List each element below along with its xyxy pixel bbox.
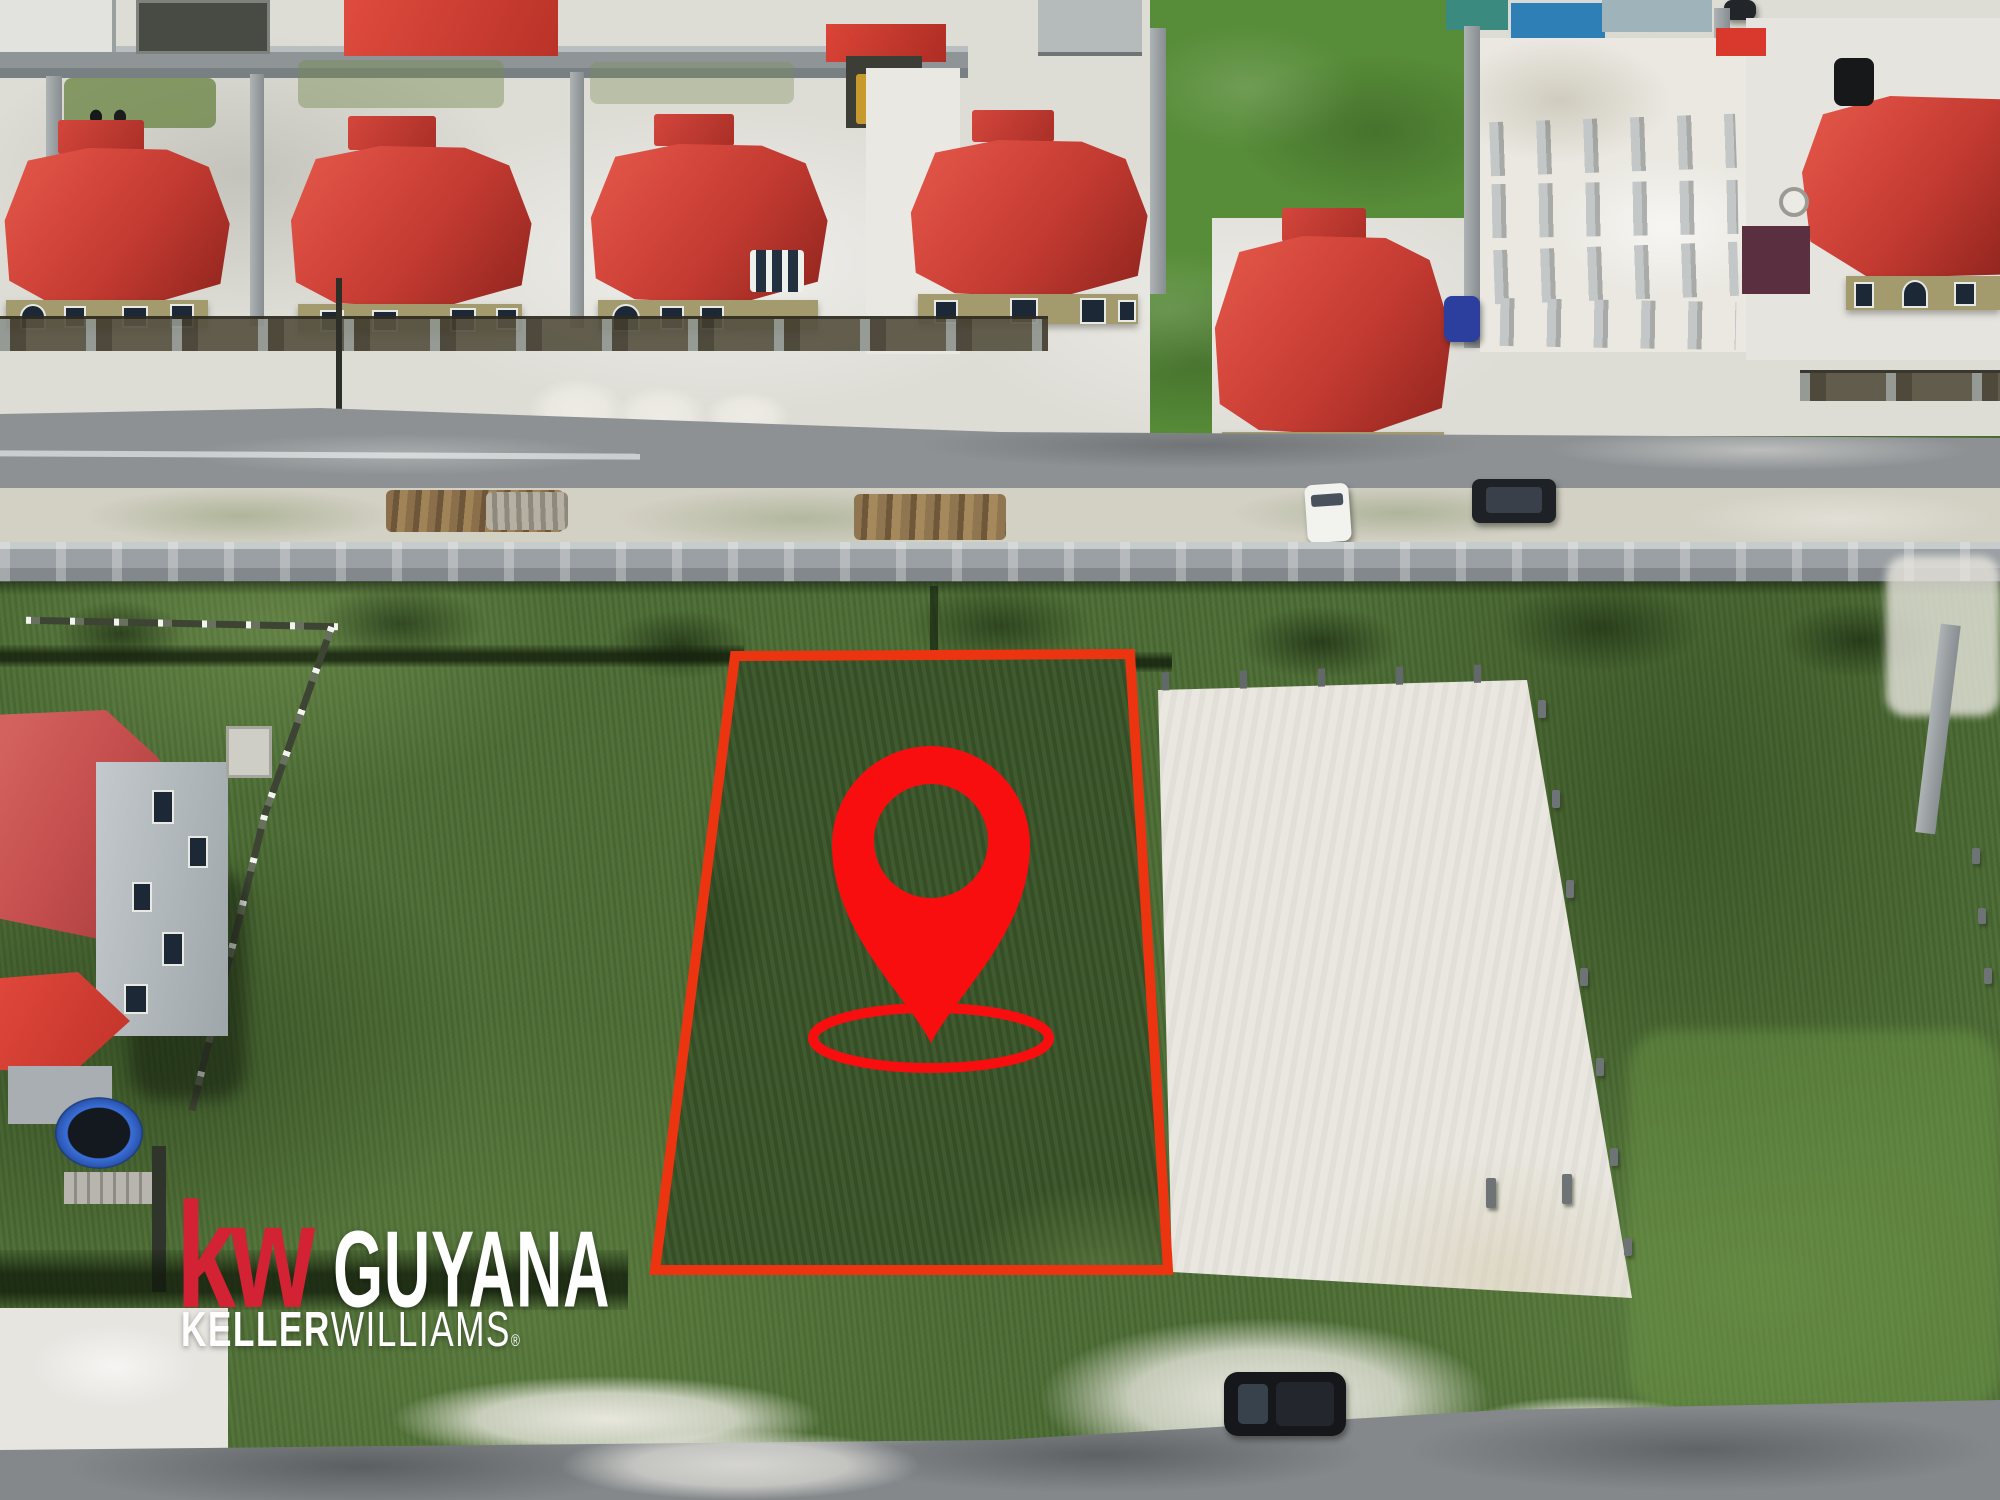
logo-brand-bold: KELLER — [181, 1303, 331, 1357]
location-pin-icon — [832, 746, 1030, 1043]
logo-brand-light: WILLIAMS — [331, 1303, 511, 1357]
logo-brand-text: KELLERWILLIAMS® — [181, 1306, 521, 1355]
registered-mark: ® — [511, 1331, 521, 1350]
aerial-photo: kw GUYANA KELLERWILLIAMS® — [0, 0, 2000, 1500]
